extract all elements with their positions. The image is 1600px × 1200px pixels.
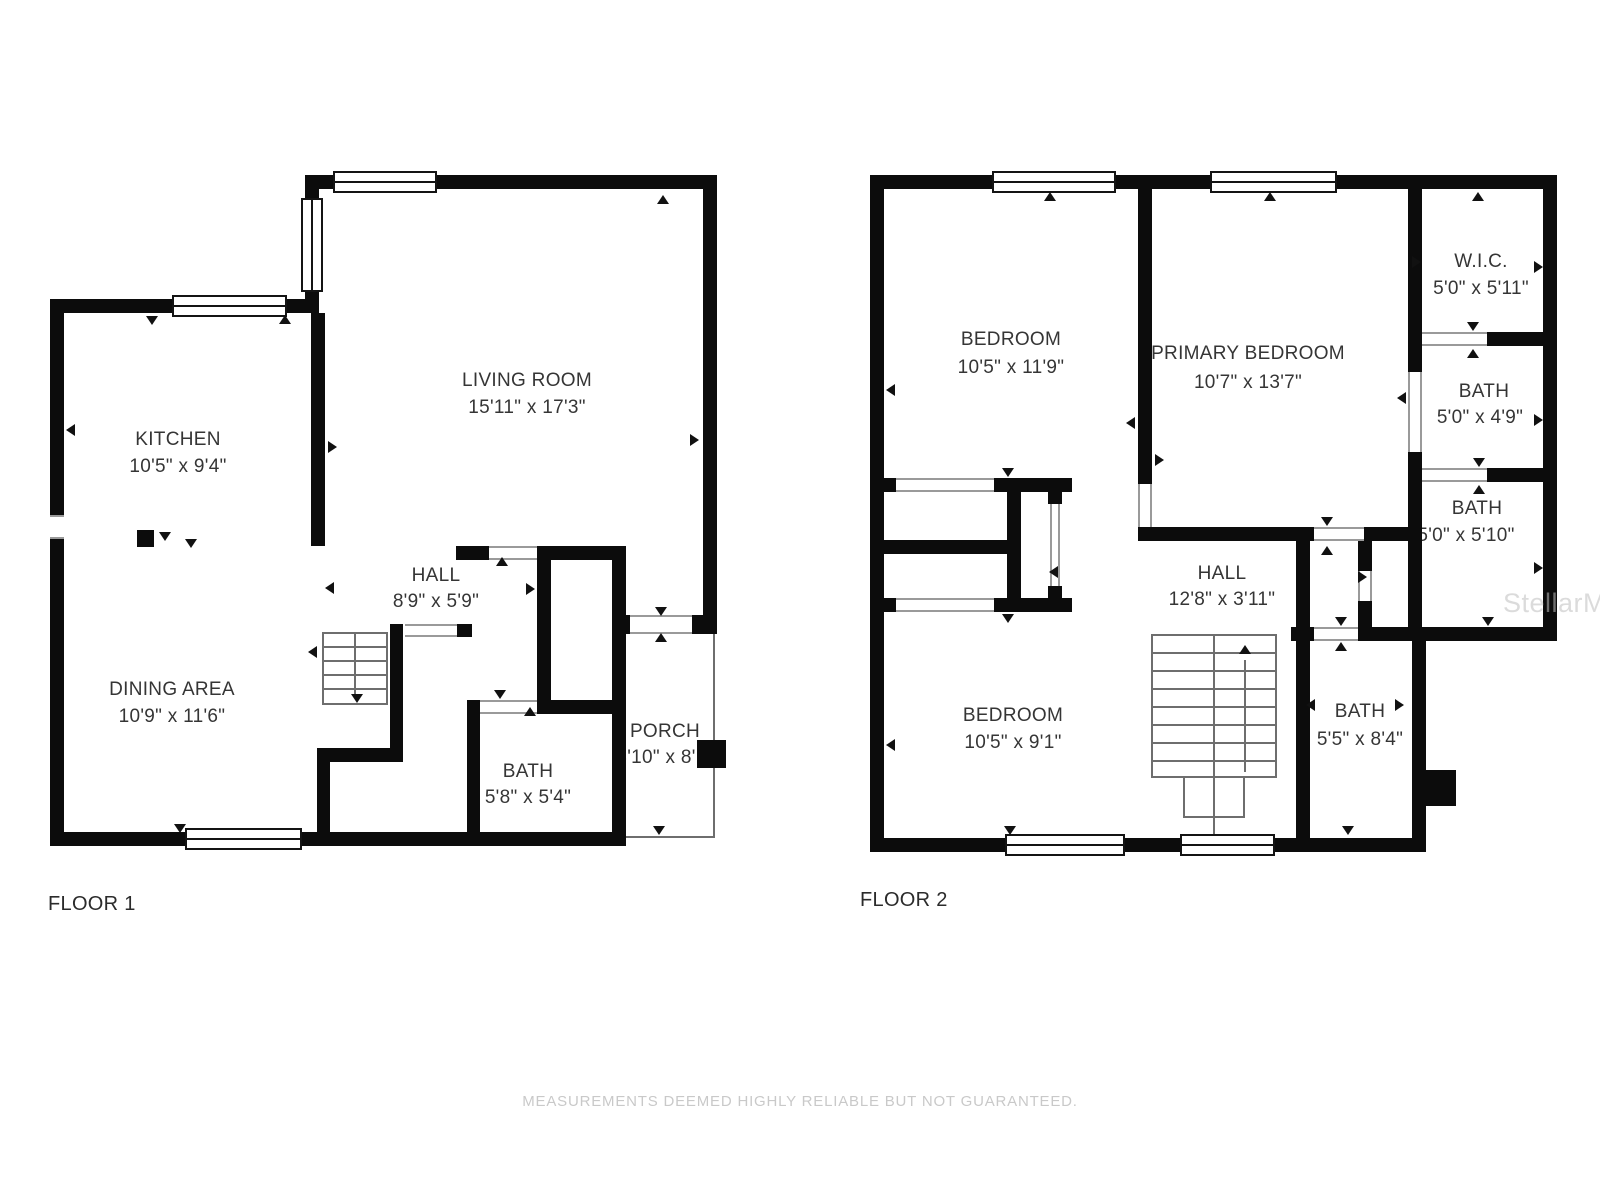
wall: [703, 175, 717, 615]
door-arrow: [159, 532, 171, 541]
wall: [1048, 478, 1062, 504]
door-arrow: [653, 826, 665, 835]
room-dims: 5'8" x 5'4": [485, 787, 571, 809]
door-arrow: [657, 195, 669, 204]
door-opening: [1314, 627, 1358, 641]
door-arrow: [1534, 562, 1543, 574]
door-arrow: [1049, 566, 1058, 578]
door-arrow: [1155, 454, 1164, 466]
room-label: KITCHEN: [135, 429, 221, 451]
door-opening: [1408, 372, 1422, 452]
door-arrow: [1002, 614, 1014, 623]
room-dims: 5'0" x 4'9": [1437, 407, 1523, 429]
stair-porch-line: [1244, 660, 1246, 772]
wall: [50, 299, 64, 846]
wall: [537, 546, 626, 560]
door-arrow: [496, 557, 508, 566]
window-pane-line: [311, 200, 313, 290]
door-arrow: [66, 424, 75, 436]
disclaimer-text: MEASUREMENTS DEEMED HIGHLY RELIABLE BUT …: [0, 1093, 1600, 1110]
door-arrow: [1044, 192, 1056, 201]
room-label: W.I.C.: [1454, 251, 1508, 273]
wall: [467, 714, 480, 832]
wall: [1358, 541, 1372, 571]
door-arrow: [1412, 256, 1421, 268]
door-opening: [1422, 332, 1487, 346]
wall: [1487, 468, 1557, 482]
wall: [1007, 478, 1021, 612]
wall: [870, 838, 1426, 852]
floor-plan-canvas: KITCHEN 10'5" x 9'4" LIVING ROOM 15'11" …: [0, 0, 1600, 1200]
door-arrow: [494, 690, 506, 699]
stair-porch-line: [1183, 778, 1185, 818]
window: [333, 171, 437, 193]
door-arrow: [1473, 458, 1485, 467]
door-arrow: [328, 441, 337, 453]
door-arrow: [279, 315, 291, 324]
room-dims: 10'9" x 11'6": [119, 706, 226, 728]
wall: [1358, 601, 1372, 641]
room-dims: 12'8" x 3'11": [1169, 589, 1276, 611]
window-pane-line: [174, 305, 285, 307]
door-opening: [50, 515, 64, 539]
room-label: BATH: [1452, 498, 1502, 520]
room-label: BEDROOM: [963, 705, 1063, 727]
wall: [697, 740, 726, 768]
wall: [1412, 770, 1456, 806]
window: [1005, 834, 1125, 856]
wall: [390, 624, 403, 762]
door-arrow: [1004, 826, 1016, 835]
wall: [1358, 627, 1557, 641]
stellar-mls-watermark: StellarMLS: [1503, 588, 1600, 619]
door-arrow: [325, 582, 334, 594]
room-label: LIVING ROOM: [462, 370, 592, 392]
wall: [467, 700, 480, 714]
door-opening: [405, 624, 457, 637]
stair-porch-line: [1213, 778, 1215, 836]
wall: [1138, 527, 1314, 541]
floor-2-title: FLOOR 2: [860, 889, 948, 912]
wall: [1296, 541, 1310, 838]
window: [301, 198, 323, 292]
door-arrow: [1342, 826, 1354, 835]
wall: [457, 624, 472, 637]
room-label: BATH: [1335, 701, 1385, 723]
room-dims: 10'5" x 9'1": [964, 732, 1061, 754]
door-opening: [896, 598, 994, 612]
door-arrow: [1467, 349, 1479, 358]
window-pane-line: [1212, 181, 1335, 183]
wall: [137, 530, 154, 547]
door-arrow: [1306, 699, 1315, 711]
door-arrow: [1264, 192, 1276, 201]
window-pane-line: [1007, 844, 1123, 846]
wall: [317, 762, 330, 832]
room-dims: 8'9" x 5'9": [393, 591, 479, 613]
stair-porch-line: [354, 632, 356, 694]
door-arrow: [886, 739, 895, 751]
room-label: DINING AREA: [109, 679, 235, 701]
stair-porch-line: [1243, 778, 1245, 818]
window: [992, 171, 1116, 193]
room-label: BATH: [1459, 381, 1509, 403]
door-arrow: [1467, 322, 1479, 331]
door-arrow: [1239, 645, 1251, 654]
wall: [1543, 175, 1557, 641]
door-arrow: [886, 384, 895, 396]
stair-porch-line: [322, 632, 324, 705]
wall: [1291, 627, 1314, 641]
window-pane-line: [187, 838, 300, 840]
wall: [537, 560, 551, 700]
stair-porch-line: [1213, 634, 1215, 778]
room-label: HALL: [1198, 563, 1247, 585]
room-dims: 15'11" x 17'3": [468, 397, 586, 419]
wall: [317, 748, 403, 762]
door-arrow: [524, 707, 536, 716]
wall: [311, 313, 325, 546]
door-arrow: [1395, 699, 1404, 711]
room-label: PORCH: [630, 721, 700, 743]
room-label: HALL: [412, 565, 461, 587]
window-pane-line: [994, 181, 1114, 183]
room-dims: 10'5" x 9'4": [129, 456, 226, 478]
door-arrow: [1473, 485, 1485, 494]
door-arrow: [1335, 617, 1347, 626]
room-dims: 5'0" x 5'10": [1417, 525, 1514, 547]
door-arrow: [1472, 192, 1484, 201]
room-dims: 3'10" x 8': [616, 747, 695, 769]
room-dims: 10'7" x 13'7": [1194, 372, 1302, 394]
window-pane-line: [335, 181, 435, 183]
door-arrow: [185, 539, 197, 548]
wall: [1408, 452, 1422, 641]
door-arrow: [1321, 517, 1333, 526]
door-arrow: [1482, 617, 1494, 626]
wall: [1487, 332, 1557, 346]
door-arrow: [146, 316, 158, 325]
wall: [692, 615, 717, 634]
room-dims: 5'5" x 8'4": [1317, 729, 1403, 751]
door-arrow: [1335, 642, 1347, 651]
door-arrow: [1321, 546, 1333, 555]
wall: [870, 175, 884, 852]
door-arrow: [174, 824, 186, 833]
door-arrow: [1126, 417, 1135, 429]
window: [1180, 834, 1275, 856]
door-arrow: [1534, 261, 1543, 273]
wall: [50, 832, 626, 846]
wall: [612, 615, 630, 634]
wall: [884, 598, 896, 612]
room-label: BEDROOM: [961, 329, 1061, 351]
door-opening: [896, 478, 994, 492]
door-opening: [1314, 527, 1364, 541]
door-arrow: [351, 694, 363, 703]
wall: [1412, 627, 1426, 852]
stair-porch-line: [626, 836, 715, 838]
wall: [537, 700, 626, 714]
wall: [456, 546, 489, 560]
room-label: PRIMARY BEDROOM: [1151, 343, 1345, 365]
window: [1210, 171, 1337, 193]
room-dims: 5'0" x 5'11": [1433, 278, 1529, 300]
window-pane-line: [1182, 844, 1273, 846]
room-dims: 10'5" x 11'9": [958, 357, 1065, 379]
door-arrow: [655, 633, 667, 642]
door-opening: [1138, 484, 1152, 527]
wall: [1408, 189, 1422, 372]
window: [185, 828, 302, 850]
door-arrow: [526, 583, 535, 595]
stair-porch-line: [386, 632, 388, 705]
door-arrow: [1534, 414, 1543, 426]
wall: [884, 478, 896, 492]
stair-porch-line: [713, 634, 715, 838]
door-arrow: [1397, 392, 1406, 404]
room-label: BATH: [503, 761, 553, 783]
door-arrow: [655, 607, 667, 616]
door-arrow: [308, 646, 317, 658]
door-opening: [1422, 468, 1487, 482]
door-arrow: [690, 434, 699, 446]
wall: [1138, 189, 1152, 484]
stair-porch-line: [322, 703, 388, 705]
wall: [1048, 586, 1062, 612]
floor-1-title: FLOOR 1: [48, 893, 136, 916]
door-opening: [630, 615, 692, 634]
door-arrow: [1358, 571, 1367, 583]
window: [172, 295, 287, 317]
wall: [884, 540, 1007, 554]
door-arrow: [1002, 468, 1014, 477]
